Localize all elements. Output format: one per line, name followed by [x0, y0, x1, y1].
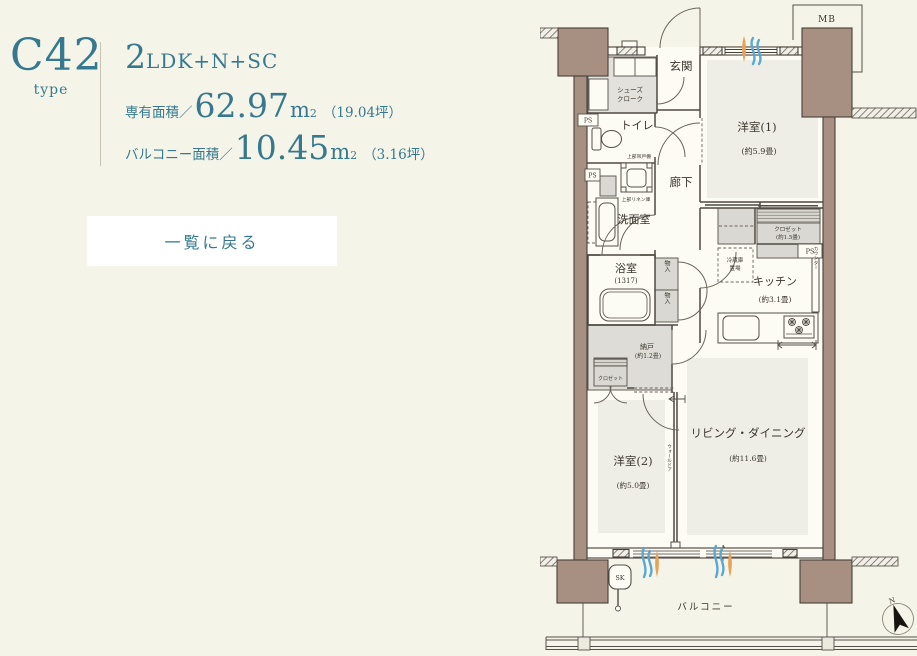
label-balcony: バルコニー: [677, 602, 734, 613]
label-sk: SK: [615, 574, 624, 582]
entrance-post: [622, 41, 637, 47]
label-closet1-1: クロゼット: [774, 225, 802, 233]
label-washroom: 洗面室: [618, 212, 651, 226]
label-closet-small: クロゼット: [598, 375, 623, 382]
layout-type: 2LDK+N+SC: [125, 40, 434, 73]
washing-machine-pan: [621, 163, 652, 192]
label-kitchen-size: (約3.1畳): [759, 294, 792, 304]
balcony-area-unit: m: [330, 140, 350, 164]
vanity-basin: [596, 198, 618, 246]
floor-plan-page: C42 type 2LDK+N+SC 専有面積／62.97m2（19.04坪） …: [0, 0, 917, 656]
exclusive-area-label: 専有面積／: [125, 101, 193, 121]
floor-plan: N MB 玄関 シューズ クローク トイレ 上部吊戸棚 廊下 上部リネン庫 洗面…: [540, 0, 917, 656]
unit-type-label: type: [10, 82, 92, 98]
label-kitchen: キッチン: [753, 275, 797, 288]
label-fridge-2: 置場: [729, 264, 741, 272]
exclusive-area-tsubo: （19.04坪）: [323, 101, 402, 121]
balcony-area: バルコニー面積／10.45m2（3.16坪）: [125, 131, 434, 164]
label-washroom-note: 上部リネン庫: [622, 196, 651, 203]
balcony-area-sup: 2: [350, 149, 357, 162]
label-bath-size: (1317): [614, 277, 638, 285]
exclusive-area-value: 62.97: [195, 89, 289, 122]
slop-sink: [609, 565, 631, 611]
label-closet1-2: (約1.5畳): [776, 233, 800, 241]
label-ps-1: PS: [584, 118, 592, 125]
label-toilet: トイレ: [621, 119, 654, 132]
label-walldoor: ウォールドア: [667, 443, 672, 472]
bathtub: [600, 289, 650, 321]
label-nando: 納戸: [640, 342, 654, 351]
balcony-area-value: 10.45: [235, 131, 329, 164]
north-compass-icon: N: [876, 592, 917, 638]
label-toilet-note: 上部吊戸棚: [627, 153, 651, 160]
unit-type-code: C42: [10, 34, 92, 78]
label-ps-2: PS: [588, 173, 596, 180]
label-shoes-2: クローク: [617, 95, 643, 103]
back-to-list-button[interactable]: 一覧に戻る: [87, 216, 337, 266]
layout-rooms-type: LDK+N+SC: [146, 49, 278, 73]
balcony-area-tsubo: （3.16坪）: [363, 143, 434, 163]
label-living-size: (約11.6畳): [729, 453, 767, 463]
exclusive-area: 専有面積／62.97m2（19.04坪）: [125, 89, 434, 122]
label-shoes-1: シューズ: [617, 85, 643, 94]
compass-north-label: N: [888, 596, 896, 606]
label-mb: MB: [818, 15, 836, 25]
balcony-area-label: バルコニー面積／: [125, 143, 233, 163]
exclusive-area-sup: 2: [310, 107, 317, 120]
label-storage-1: 物入: [663, 259, 670, 272]
unit-specs: 2LDK+N+SC 専有面積／62.97m2（19.04坪） バルコニー面積／1…: [125, 40, 434, 173]
vertical-divider: [100, 42, 101, 166]
kitchen-counter: [718, 313, 818, 343]
unit-type-block: C42 type: [10, 34, 92, 98]
label-storage-2: 物入: [663, 291, 670, 304]
label-west2: 洋室(2): [613, 454, 652, 468]
label-ps-3: PS: [806, 248, 815, 256]
label-hallway: 廊下: [670, 175, 693, 189]
label-nando-size: (約1.2畳): [635, 352, 661, 360]
layout-rooms-count: 2: [125, 40, 146, 73]
label-west1-size: (約5.9畳): [742, 146, 777, 156]
exclusive-area-unit: m: [290, 98, 310, 122]
label-genkan: 玄関: [670, 59, 693, 73]
label-bath: 浴室: [615, 261, 637, 275]
label-living: リビング・ダイニング: [691, 426, 806, 440]
label-west1: 洋室(1): [737, 120, 776, 134]
label-fridge-1: 冷蔵庫: [727, 256, 744, 264]
label-west2-size: (約5.0畳): [617, 480, 650, 490]
